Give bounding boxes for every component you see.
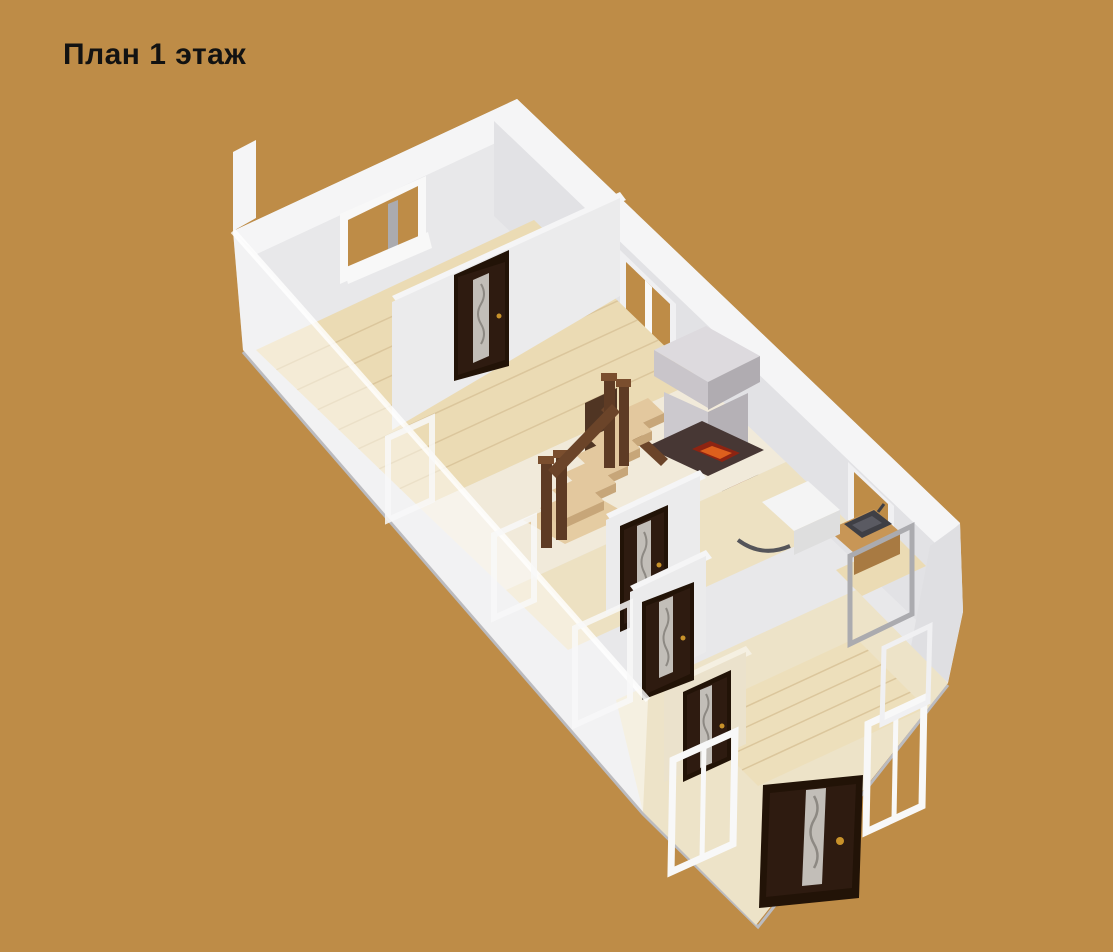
door-handle — [720, 724, 725, 729]
floor-plan-page: План 1 этаж — [0, 0, 1113, 952]
door-handle — [657, 563, 662, 568]
door-handle — [836, 837, 844, 845]
entrance-door — [759, 775, 863, 908]
wall-corner-sliver — [233, 140, 256, 231]
floor-plan-rendering — [0, 0, 1113, 952]
door-handle — [497, 314, 502, 319]
door-handle — [681, 636, 686, 641]
page-title: План 1 этаж — [63, 38, 246, 72]
interior-door — [642, 582, 694, 700]
